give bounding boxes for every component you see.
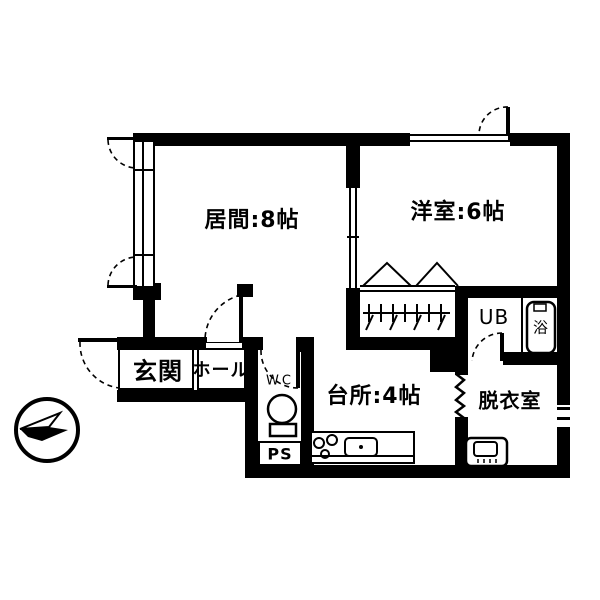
window-swing-arc [108,140,135,168]
room-label-living: 居間:8帖 [204,202,299,234]
stove-burners-icon [314,435,337,458]
door-swing-arc [479,107,508,134]
kitchen-sink-icon [345,438,377,456]
room-label-kitchen: 台所:4帖 [326,378,421,410]
washing-machine-icon [466,438,507,466]
room-label-unit-bath: UB [479,305,509,329]
room-label-ps: PS [267,445,292,464]
room-label-entrance: 玄関 [133,352,183,387]
room-label-western: 洋室:6帖 [410,194,505,226]
clothes-hanger-rod-icon [363,304,450,330]
bifold-door-icon [363,263,458,286]
compass-icon [16,399,78,461]
accordion-door-icon [456,374,464,418]
room-label-wc: WC [266,374,294,389]
window-swing-arc [108,257,135,285]
ub-door-swing-arc [472,333,502,361]
room-label-bath-tub: 浴 [533,317,549,338]
door-swing-arc [205,295,241,342]
entrance-door-swing-arc [80,342,119,388]
toilet-icon [268,395,296,436]
room-label-hall: ホール [193,356,250,382]
floor-plan: 居間:8帖 洋室:6帖 台所:4帖 脱衣室 玄関 ホール WC PS UB 浴 [0,0,600,600]
symbol-overlay [0,0,600,600]
room-label-dressing: 脱衣室 [479,385,542,414]
